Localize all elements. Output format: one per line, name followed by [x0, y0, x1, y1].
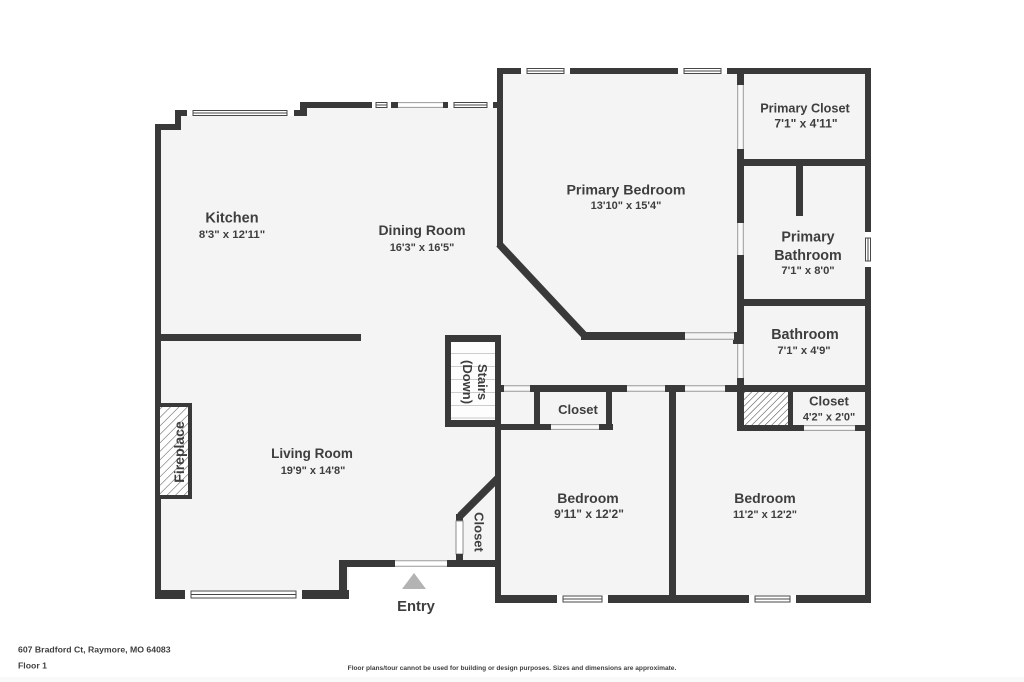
- svg-text:607 Bradford Ct, Raymore, MO 6: 607 Bradford Ct, Raymore, MO 64083: [18, 645, 171, 655]
- svg-text:Closet: Closet: [558, 402, 598, 417]
- svg-text:19'9" x 14'8": 19'9" x 14'8": [281, 465, 346, 477]
- svg-text:Entry: Entry: [397, 599, 436, 615]
- svg-text:Closet: Closet: [472, 512, 487, 552]
- svg-text:Floor plans/tour cannot be use: Floor plans/tour cannot be used for buil…: [348, 665, 677, 672]
- svg-text:7'1" x 4'11": 7'1" x 4'11": [774, 117, 837, 131]
- svg-text:Bathroom: Bathroom: [771, 327, 839, 343]
- svg-text:Bathroom: Bathroom: [774, 248, 842, 264]
- svg-text:13'10" x 15'4": 13'10" x 15'4": [591, 200, 662, 212]
- svg-text:9'11" x 12'2": 9'11" x 12'2": [554, 507, 624, 521]
- svg-text:4'2" x 2'0": 4'2" x 2'0": [803, 412, 855, 424]
- svg-text:Living Room: Living Room: [271, 446, 353, 461]
- svg-text:7'1" x 4'9": 7'1" x 4'9": [777, 345, 830, 357]
- svg-text:16'3" x 16'5": 16'3" x 16'5": [390, 242, 455, 254]
- svg-text:Primary: Primary: [781, 230, 834, 246]
- svg-text:8'3" x 12'11": 8'3" x 12'11": [199, 229, 265, 241]
- svg-text:Primary Bedroom: Primary Bedroom: [566, 183, 685, 199]
- svg-text:Fireplace: Fireplace: [171, 421, 187, 483]
- svg-text:Dining Room: Dining Room: [378, 222, 465, 238]
- svg-text:Floor 1: Floor 1: [18, 661, 47, 671]
- svg-text:Bedroom: Bedroom: [734, 490, 795, 506]
- svg-text:Kitchen: Kitchen: [205, 211, 258, 227]
- svg-text:11'2" x 12'2": 11'2" x 12'2": [733, 509, 797, 521]
- svg-text:Closet: Closet: [809, 394, 849, 409]
- svg-text:Primary Closet: Primary Closet: [760, 102, 850, 116]
- svg-text:Stairs(Down): Stairs(Down): [460, 360, 490, 404]
- svg-text:Bedroom: Bedroom: [557, 490, 618, 506]
- svg-text:7'1" x 8'0": 7'1" x 8'0": [781, 265, 834, 277]
